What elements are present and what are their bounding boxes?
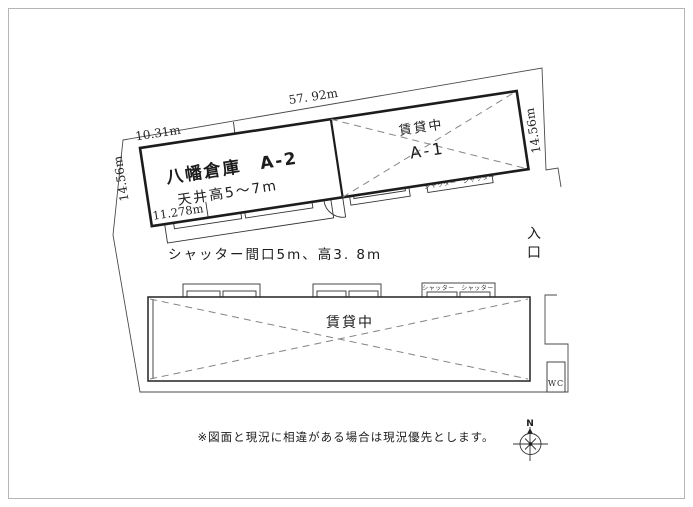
entrance-char-top: 入: [527, 226, 541, 242]
entrance-char-bottom: 口: [527, 245, 541, 261]
shutter-spec-note: シャッター間口5m、高3. 8m: [168, 246, 382, 263]
lower-building-group: シャッター シャッター 賃貸中: [148, 283, 530, 381]
dim-left-height: 14.56m: [110, 154, 131, 202]
wc-label: WC: [548, 379, 564, 388]
lower-leased-label: 賃貸中: [326, 315, 374, 331]
shutter-label: シャッター シャッター: [422, 284, 494, 292]
floor-plan-page: シャッター シャッター 八幡倉庫 A-2 天井高5～7m 賃貸中 A-1 10.…: [0, 0, 693, 507]
site-plan-drawing: シャッター シャッター 八幡倉庫 A-2 天井高5～7m 賃貸中 A-1 10.…: [0, 0, 693, 507]
disclaimer-note: ※図面と現況に相違がある場合は現況優先とします。: [198, 430, 495, 444]
entrance-label: 入 口: [527, 226, 541, 261]
upper-warehouse-group: シャッター シャッター 八幡倉庫 A-2 天井高5～7m 賃貸中 A-1 10.…: [132, 59, 531, 246]
compass-center-dot: [529, 442, 533, 446]
door-leaf: [343, 198, 346, 217]
compass-rose: N: [513, 419, 548, 461]
dim-top-partial: 10.31m: [134, 123, 182, 144]
